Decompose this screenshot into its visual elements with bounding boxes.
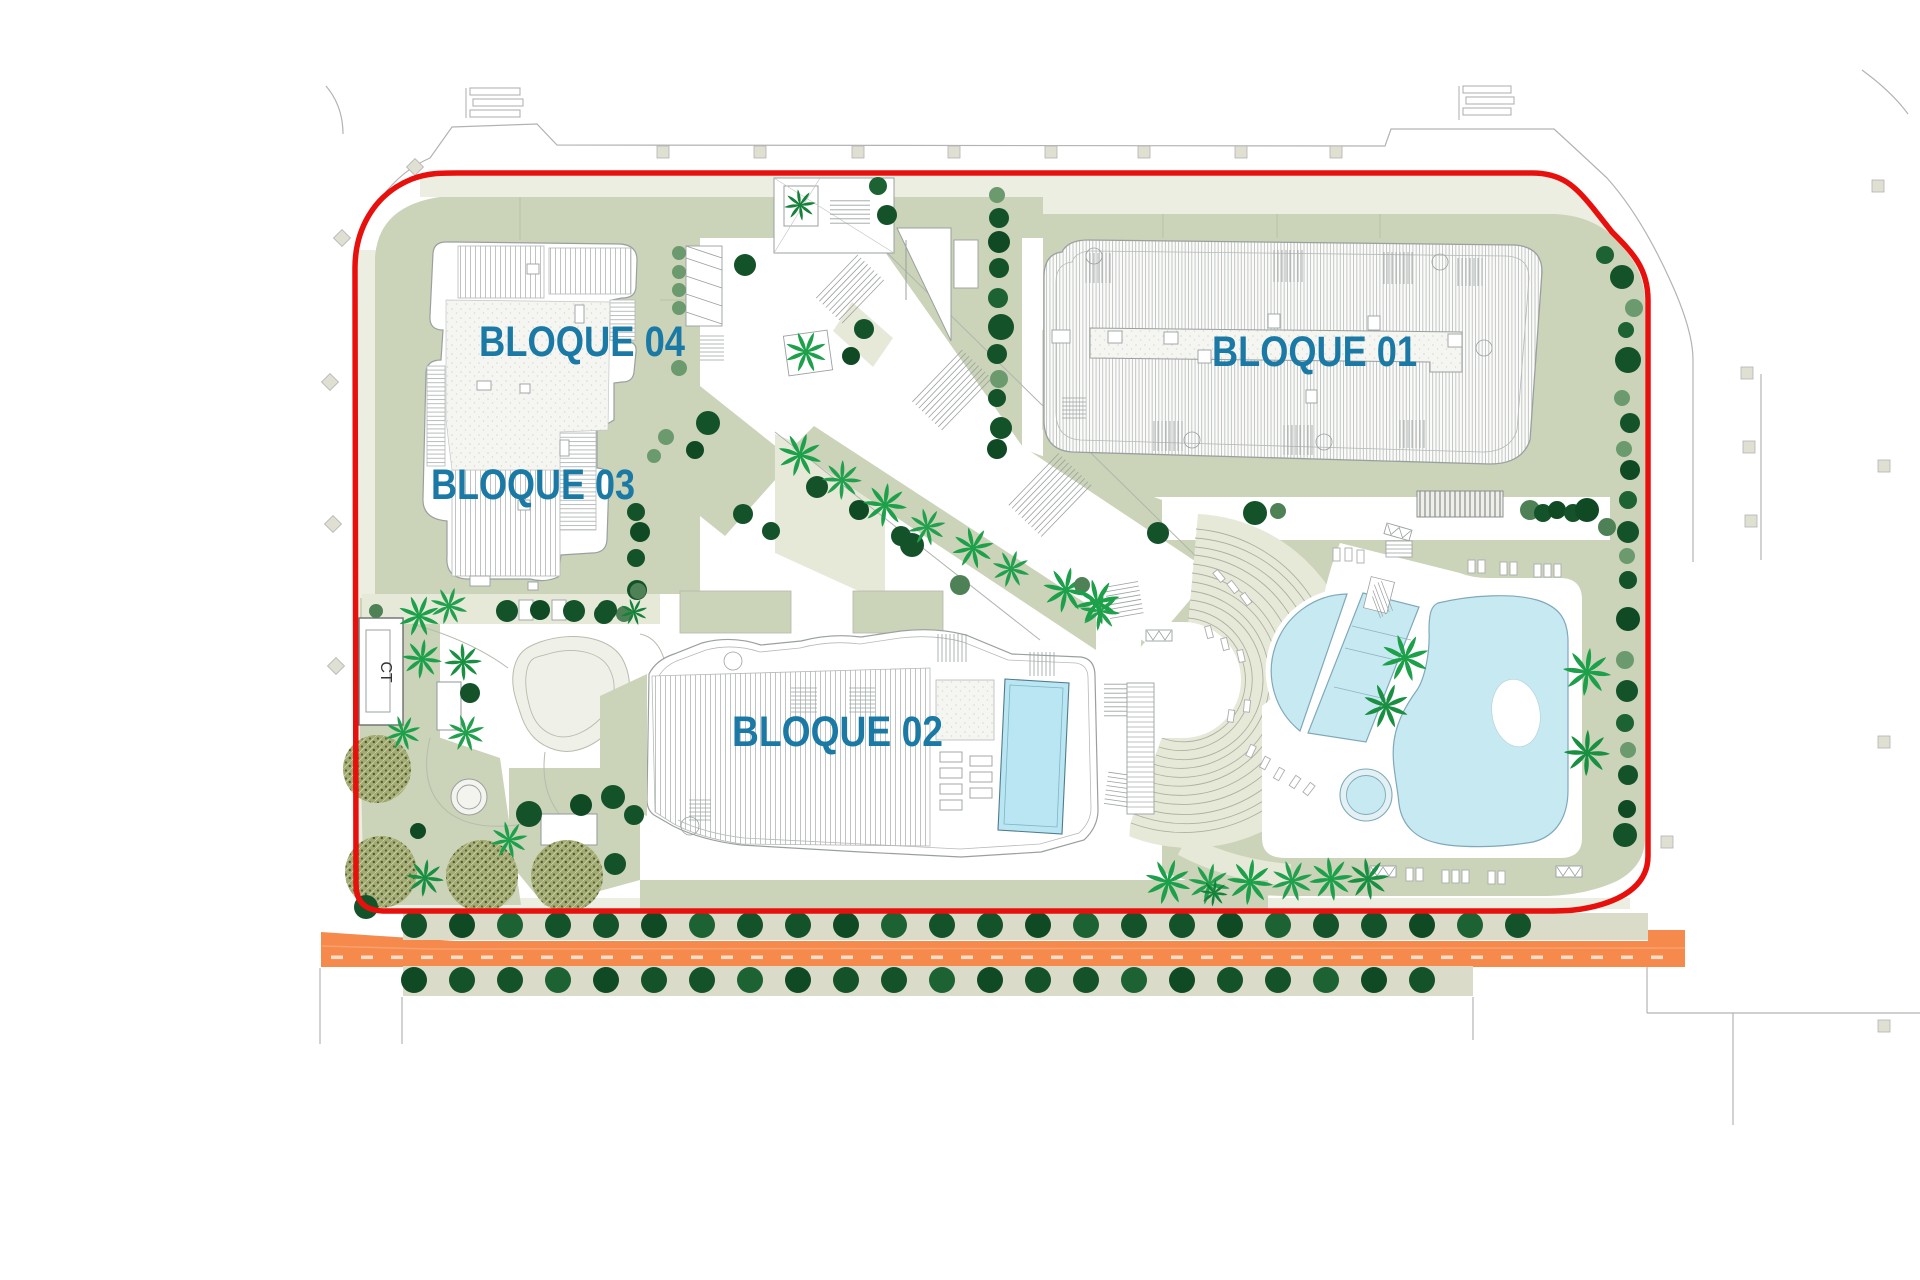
- svg-text:BLOQUE 03: BLOQUE 03: [431, 461, 635, 509]
- svg-text:BLOQUE 04: BLOQUE 04: [479, 318, 685, 366]
- svg-text:BLOQUE 01: BLOQUE 01: [1212, 328, 1417, 376]
- svg-text:BLOQUE 02: BLOQUE 02: [732, 708, 943, 756]
- svg-text:CT: CT: [377, 661, 394, 683]
